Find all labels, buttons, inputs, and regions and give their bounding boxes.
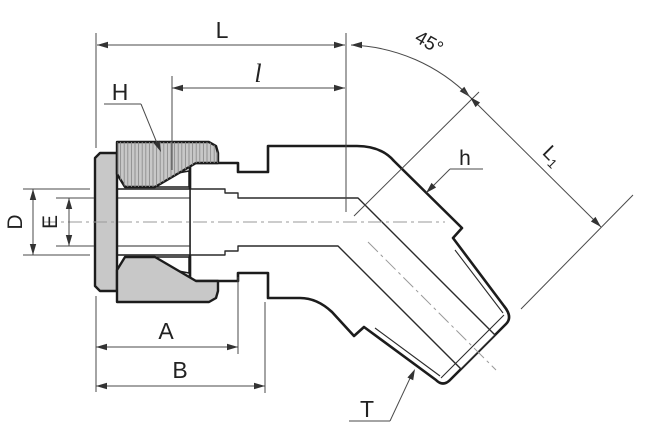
nut-band-bottom: [117, 257, 218, 302]
label-D: D: [4, 214, 27, 229]
technical-drawing: L l 45° H h L1 D E A B T: [0, 0, 656, 438]
drawing-stage: L l 45° H h L1 D E A B T: [0, 0, 656, 438]
leader-h: [426, 169, 483, 193]
label-H: H: [112, 79, 129, 105]
dim-angle-45: [351, 42, 470, 97]
label-45deg: 45°: [411, 27, 446, 60]
label-E: E: [39, 215, 62, 229]
label-T: T: [360, 396, 374, 422]
label-h: h: [459, 147, 471, 170]
leader-T: [349, 369, 415, 421]
label-L: L: [216, 17, 229, 43]
label-A: A: [158, 318, 174, 344]
label-l: l: [254, 59, 261, 88]
label-B: B: [172, 357, 187, 383]
